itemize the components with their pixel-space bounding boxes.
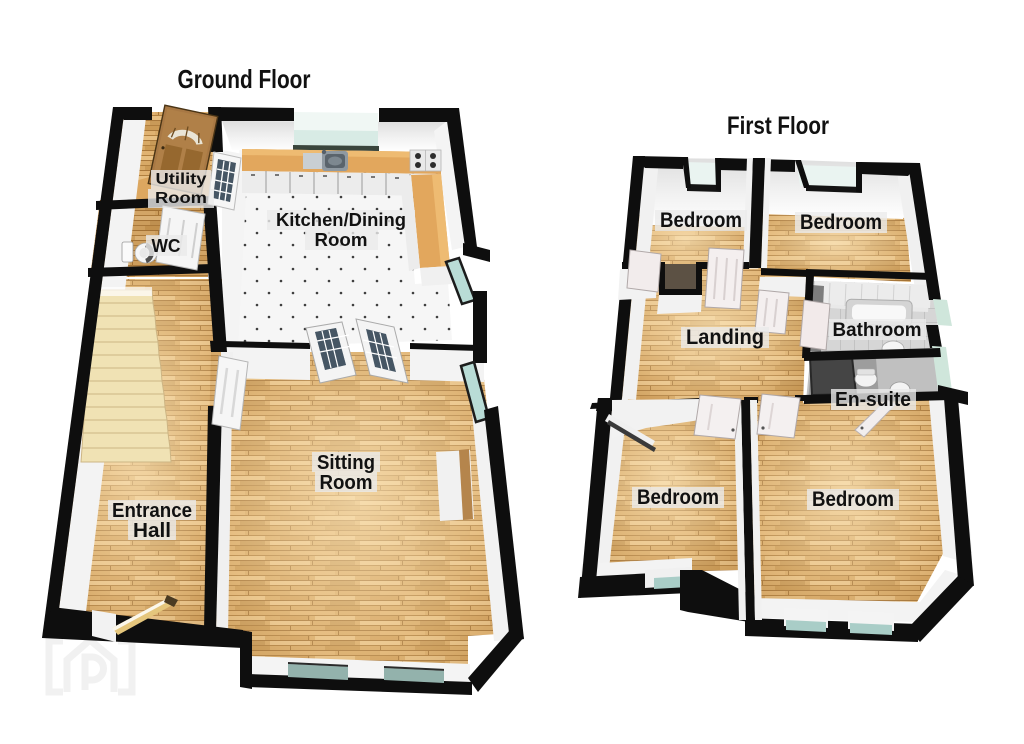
svg-text:Bedroom: Bedroom bbox=[800, 211, 882, 234]
svg-text:First Floor: First Floor bbox=[727, 112, 829, 140]
svg-text:Hall: Hall bbox=[133, 520, 171, 542]
svg-text:Sitting: Sitting bbox=[317, 452, 375, 474]
svg-text:Kitchen/Dining: Kitchen/Dining bbox=[276, 210, 406, 230]
svg-text:Entrance: Entrance bbox=[112, 500, 192, 522]
svg-text:Bathroom: Bathroom bbox=[833, 320, 922, 341]
svg-text:Room: Room bbox=[155, 190, 207, 207]
svg-text:Room: Room bbox=[320, 472, 373, 494]
svg-text:Room: Room bbox=[315, 230, 368, 250]
svg-text:Ground Floor: Ground Floor bbox=[178, 64, 311, 94]
svg-text:Landing: Landing bbox=[686, 326, 764, 349]
svg-text:Bedroom: Bedroom bbox=[812, 488, 894, 511]
svg-text:WC: WC bbox=[152, 236, 181, 256]
svg-text:Bedroom: Bedroom bbox=[637, 486, 719, 509]
svg-text:Utility: Utility bbox=[156, 171, 207, 188]
svg-text:En-suite: En-suite bbox=[835, 389, 911, 411]
svg-text:Bedroom: Bedroom bbox=[660, 209, 742, 232]
